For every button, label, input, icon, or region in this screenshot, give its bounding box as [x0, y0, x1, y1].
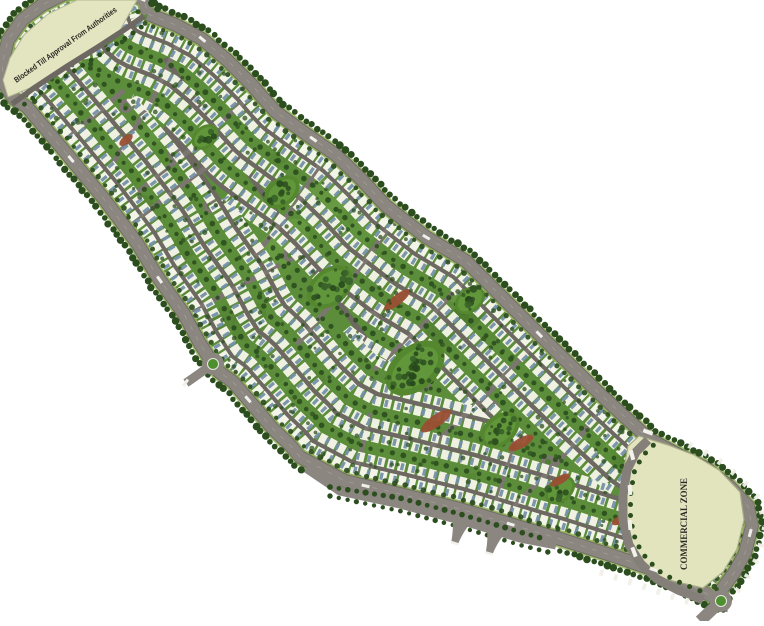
- svg-text:COMMERCIAL ZONE: COMMERCIAL ZONE: [680, 478, 690, 570]
